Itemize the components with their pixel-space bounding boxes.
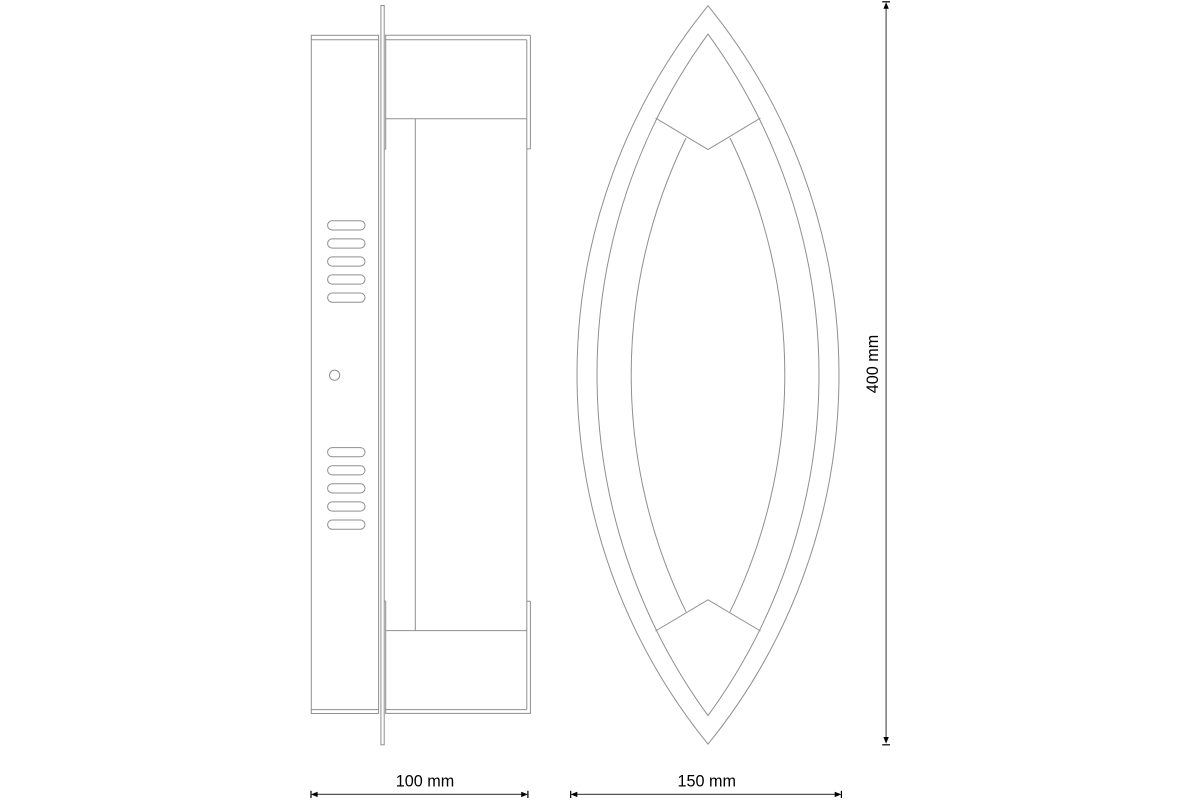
svg-text:150 mm: 150 mm [677,773,735,791]
svg-text:400 mm: 400 mm [864,335,882,393]
svg-text:100 mm: 100 mm [396,773,454,791]
